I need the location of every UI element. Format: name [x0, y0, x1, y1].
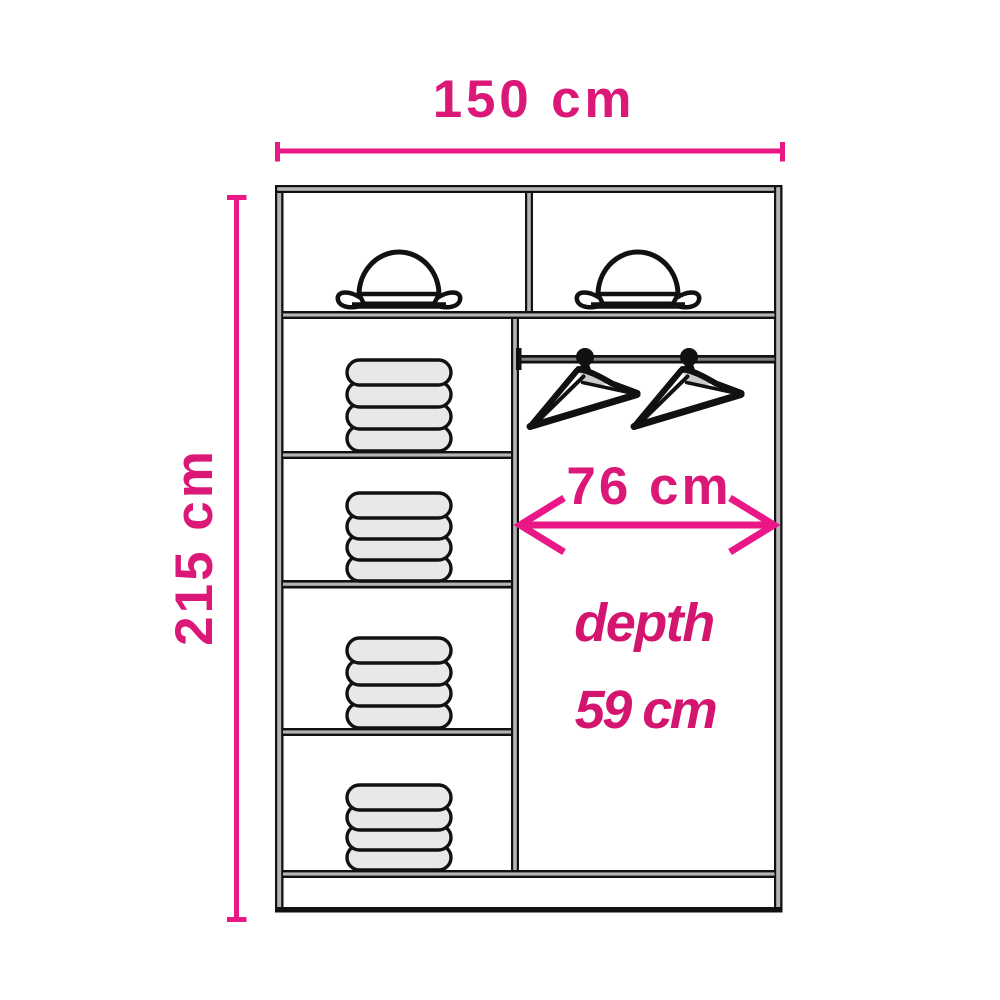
- svg-text:76 cm: 76 cm: [566, 457, 731, 516]
- svg-text:215 cm: 215 cm: [165, 448, 224, 646]
- svg-text:150 cm: 150 cm: [433, 70, 636, 129]
- svg-text:depth: depth: [574, 593, 713, 653]
- svg-text:59 cm: 59 cm: [575, 680, 716, 740]
